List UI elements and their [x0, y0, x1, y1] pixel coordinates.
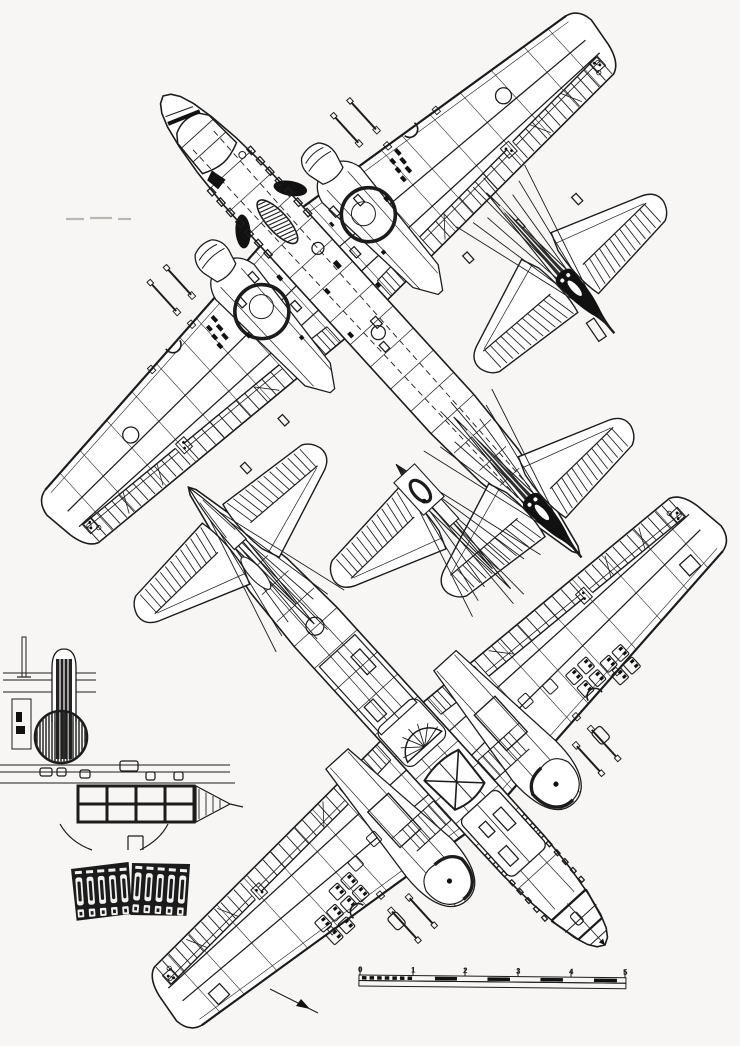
svg-text:1: 1 — [411, 966, 416, 975]
